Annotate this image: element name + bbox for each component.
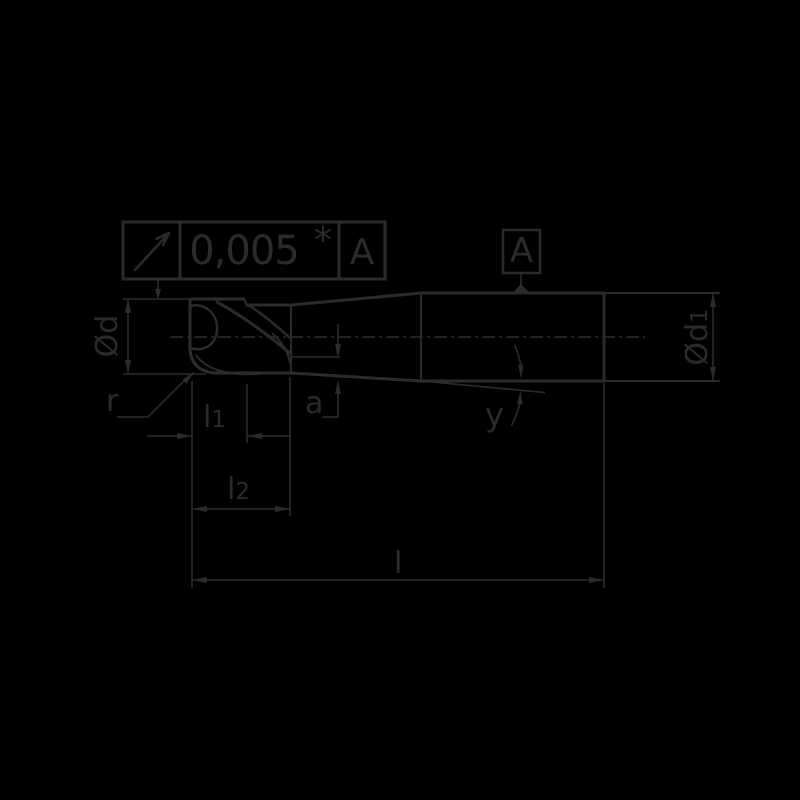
radius-leader — [117, 379, 186, 417]
arrowhead — [518, 365, 524, 379]
dimension-l2: l2 — [192, 377, 290, 516]
taper-bottom-edge — [291, 373, 421, 381]
datum-feature: A — [503, 230, 540, 294]
arrowhead — [589, 577, 604, 583]
label-head-diameter: Ød — [90, 315, 125, 358]
circular-runout-icon — [135, 233, 169, 270]
arrowhead — [335, 380, 341, 394]
angle-arc-upper — [515, 345, 521, 364]
arrowhead — [710, 293, 716, 307]
dimension-overall-length: l — [192, 381, 604, 588]
flute-exit-curve — [273, 334, 290, 363]
drawing-canvas: 0,005 * A A — [0, 0, 800, 800]
dimension-l1: l1 — [147, 384, 291, 443]
label-corner-radius: r — [106, 384, 119, 419]
arrowhead — [517, 391, 523, 405]
tolerance-frame: 0,005 * A — [123, 220, 385, 300]
tolerance-value: 0,005 — [189, 228, 299, 274]
arrowhead — [275, 506, 290, 512]
label-shank-diameter: Ød1 — [680, 308, 715, 365]
tolerance-marker: * — [314, 220, 332, 261]
arrowhead — [192, 506, 207, 512]
arrowhead — [177, 433, 192, 439]
technical-drawing: 0,005 * A A — [0, 0, 800, 800]
tolerance-datum-ref: A — [350, 232, 375, 273]
label-edge-offset: a — [305, 386, 323, 421]
spiral-flute-2 — [248, 305, 290, 338]
tip-gash-curve — [190, 305, 217, 349]
label-overall-length: l — [394, 546, 402, 581]
arrowhead — [125, 299, 131, 313]
taper-top-edge — [291, 293, 421, 305]
label-taper-angle: y — [485, 396, 504, 434]
flute-details — [190, 302, 340, 374]
taper-extension-line — [421, 381, 545, 393]
arrowhead — [335, 344, 341, 358]
label-l1: l1 — [203, 400, 226, 435]
angle-arc-lower — [512, 405, 520, 426]
dimension-corner-radius: r — [106, 371, 195, 419]
corner-radius-edge — [190, 347, 214, 373]
dimension-taper-angle: y — [421, 345, 545, 434]
arrowhead — [192, 577, 207, 583]
label-l2: l2 — [227, 472, 250, 507]
datum-label: A — [510, 231, 533, 271]
arrowhead — [710, 367, 716, 381]
arrowhead — [247, 433, 262, 439]
arrowhead — [125, 360, 131, 374]
dimension-edge-offset: a — [305, 324, 341, 421]
